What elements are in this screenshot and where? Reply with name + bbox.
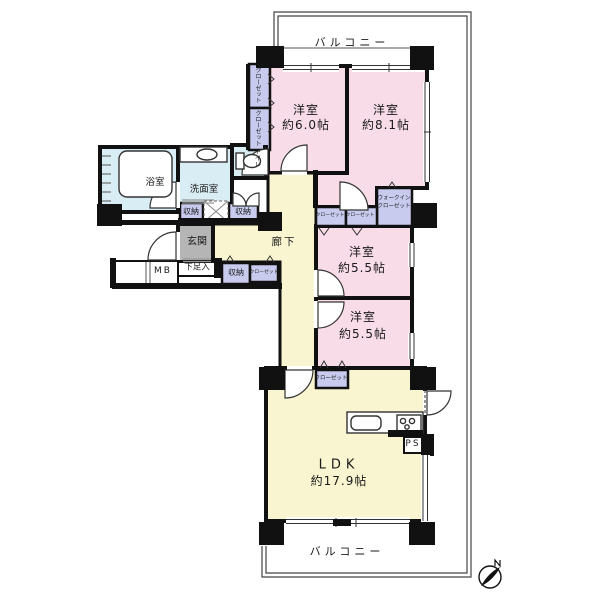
- door-shuno-right-leaf: [246, 193, 259, 206]
- room-western-8-size: 約8.1帖: [362, 118, 410, 134]
- room-western-55b-name: 洋室: [350, 310, 376, 326]
- closet-hall-label: クローゼット: [250, 270, 279, 276]
- shoe-cabinet-label: 下足入: [184, 262, 210, 273]
- balcony-top-label: バルコニー: [315, 36, 390, 50]
- ldk-name: LDK: [319, 458, 360, 475]
- compass-icon: [479, 560, 501, 588]
- balcony-bottom-label: バルコニー: [310, 545, 385, 559]
- shuno-washroom-right-label: 収納: [235, 207, 251, 217]
- entrance-label: 玄関: [187, 236, 207, 249]
- shuno-washroom-left-label: 収納: [183, 207, 199, 217]
- room-western-55b-size: 約5.5帖: [339, 327, 387, 343]
- vanity-basin-icon: [197, 149, 217, 160]
- room-western-6-size: 約6.0帖: [282, 118, 330, 134]
- closet-55a-right-label: クローゼット: [346, 213, 375, 219]
- room-western-55a-name: 洋室: [349, 245, 375, 261]
- room-western-8-name: 洋室: [373, 103, 399, 119]
- walk-in-closet-label-2: クローゼット: [377, 203, 410, 210]
- closet-60-upper-label: クローゼット: [253, 67, 262, 103]
- floorplan: バルコニー バルコニー 洋室 約6.0帖 洋室 約8.1帖 洋室 約5.5帖 洋…: [0, 0, 600, 600]
- ldk-size: 約17.9帖: [311, 474, 368, 490]
- shuno-hall-label: 収納: [228, 268, 244, 278]
- closet-60-lower-label: クローゼット: [253, 110, 262, 146]
- kitchen-sink-icon: [351, 416, 381, 430]
- door-kitchen-service: [427, 391, 451, 415]
- bath-label: 浴室: [144, 177, 165, 189]
- door-shuno-left-leaf: [233, 193, 246, 206]
- pipe-space-label: PS: [405, 439, 420, 451]
- washroom-label: 洗面室: [190, 184, 219, 196]
- closet-55b-label: クローゼット: [314, 375, 347, 382]
- room-western-55a-size: 約5.5帖: [338, 261, 386, 277]
- meter-box-label: MB: [154, 266, 172, 278]
- closet-55a-left-label: クローゼット: [316, 213, 345, 219]
- floorplan-graphics: [0, 0, 600, 600]
- walk-in-closet-label-1: ウォークイン: [377, 195, 410, 202]
- toilet-label: トイレ: [252, 148, 262, 168]
- door-entrance: [148, 232, 176, 260]
- room-western-6-name: 洋室: [293, 103, 319, 119]
- hallway-label: 廊下: [272, 236, 297, 250]
- bathtub-icon: [119, 151, 172, 197]
